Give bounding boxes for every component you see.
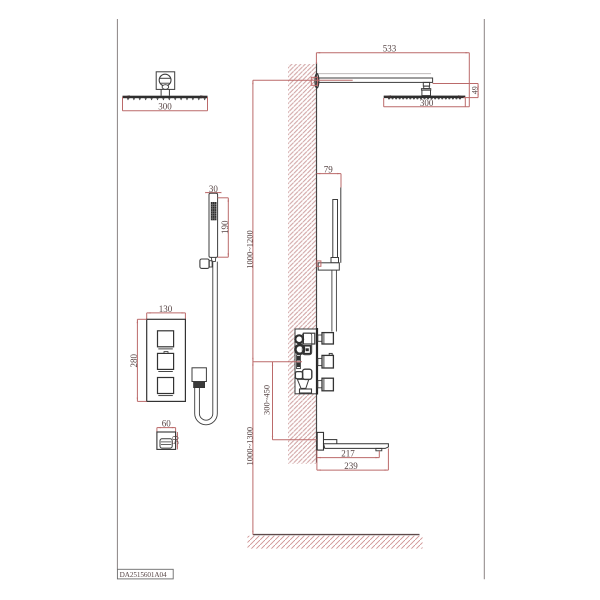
svg-text:1000~1300: 1000~1300 xyxy=(244,427,254,466)
svg-text:239: 239 xyxy=(344,461,358,471)
svg-text:300: 300 xyxy=(158,102,172,112)
svg-text:50: 50 xyxy=(170,435,180,445)
svg-text:130: 130 xyxy=(159,304,173,314)
svg-text:533: 533 xyxy=(383,44,397,54)
svg-text:300: 300 xyxy=(420,98,434,108)
svg-text:217: 217 xyxy=(341,449,355,459)
svg-text:DA2515601A04: DA2515601A04 xyxy=(120,571,167,579)
svg-text:79: 79 xyxy=(324,164,334,174)
svg-text:280: 280 xyxy=(129,353,139,367)
svg-text:30: 30 xyxy=(209,184,219,194)
svg-text:49: 49 xyxy=(471,86,480,94)
svg-text:60: 60 xyxy=(162,419,172,429)
svg-text:300~450: 300~450 xyxy=(261,385,271,415)
svg-text:190: 190 xyxy=(220,220,230,234)
svg-text:1000~1200: 1000~1200 xyxy=(244,230,254,269)
